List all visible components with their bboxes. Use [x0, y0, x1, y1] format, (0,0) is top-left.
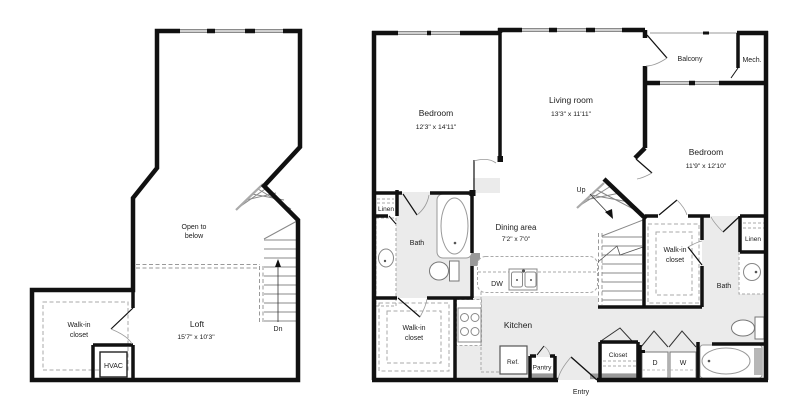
down-label: Dn — [274, 326, 283, 333]
right-floor-plan: Bedroom 12'3" x 14'11" Living room 13'3"… — [372, 27, 768, 396]
bedroom-right-dims: 11'9" x 12'10" — [686, 163, 727, 170]
bedroom-right-label: Bedroom — [689, 147, 724, 157]
dryer-label: D — [652, 360, 657, 367]
pantry-label: Pantry — [533, 365, 553, 372]
stove — [458, 308, 481, 342]
kitchen-sink — [509, 269, 537, 290]
bedroom-left-dims: 12'3" x 14'11" — [416, 124, 457, 131]
open-to-below-label-1: Open to — [182, 224, 207, 231]
refrigerator-label: Ref. — [507, 359, 519, 366]
left-floor-plan: Open to below Loft 15'7" x 10'3" Walk-in… — [32, 28, 300, 380]
hvac-label: HVAC — [104, 363, 123, 370]
wall-jamb — [498, 156, 504, 162]
dishwasher-label: DW — [491, 281, 503, 288]
toilet — [430, 262, 449, 280]
linen-right-shelves — [741, 217, 765, 251]
open-to-below-label-2: below — [185, 233, 204, 240]
bath-left-label: Bath — [410, 240, 425, 247]
stair-break-line — [598, 246, 643, 262]
walkin-closet-label-2: closet — [70, 332, 88, 339]
closet-door — [111, 308, 133, 344]
bedroom-left-label: Bedroom — [419, 108, 454, 118]
loft-label: Loft — [190, 319, 205, 329]
loft-railing — [136, 265, 263, 323]
dining-area-label: Dining area — [496, 223, 537, 232]
washer-label: W — [680, 360, 687, 367]
linen-right-label: Linen — [745, 236, 761, 243]
stair-direction-arrow — [275, 259, 281, 267]
bath-right-label: Bath — [717, 283, 732, 290]
floor-plan-canvas: Open to below Loft 15'7" x 10'3" Walk-in… — [0, 0, 800, 414]
living-room-dims: 13'3" x 11'11" — [551, 111, 592, 118]
balcony-label: Balcony — [678, 56, 703, 63]
hall-floor — [473, 178, 500, 193]
floor-plan-svg: Open to below Loft 15'7" x 10'3" Walk-in… — [0, 0, 800, 414]
walkin-left-label-2: closet — [405, 335, 423, 342]
dining-area-dims: 7'2" x 7'0" — [502, 236, 531, 243]
walkin-closet-label-1: Walk-in — [67, 322, 90, 329]
walkin-right-label-2: closet — [666, 257, 684, 264]
mech-label: Mech. — [742, 57, 761, 64]
walkin-right-label-1: Walk-in — [663, 247, 686, 254]
linen-left-shelves — [377, 199, 394, 203]
linen-left-label: Linen — [378, 206, 394, 213]
kitchen-label: Kitchen — [504, 320, 533, 330]
bathtub — [441, 198, 468, 254]
closet-label: Closet — [609, 352, 628, 359]
toilet-right — [732, 320, 755, 336]
living-room-label: Living room — [549, 95, 593, 105]
sink — [379, 249, 394, 267]
left-plan-windows — [180, 28, 283, 34]
loft-dims: 15'7" x 10'3" — [177, 334, 215, 341]
up-label: Up — [577, 187, 586, 194]
mech-door — [731, 68, 738, 78]
stairs-down — [236, 184, 297, 322]
entry-label: Entry — [573, 389, 590, 396]
sink-right — [744, 264, 761, 281]
walkin-left-label-1: Walk-in — [402, 325, 425, 332]
